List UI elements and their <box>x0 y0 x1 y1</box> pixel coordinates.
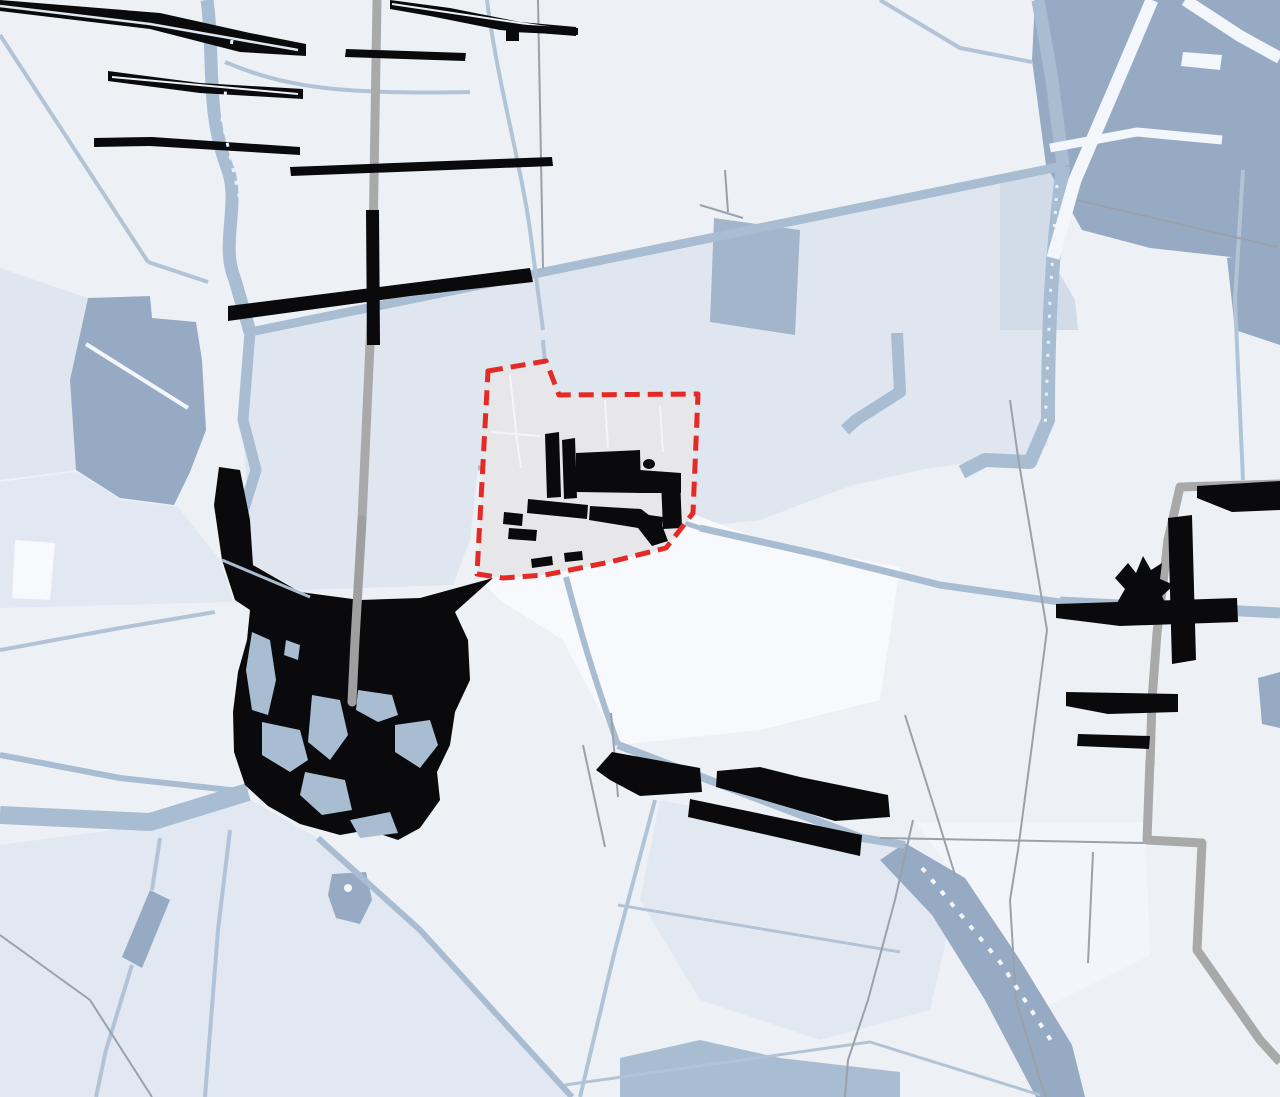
site-bldg-small1 <box>503 512 523 526</box>
site-bldg-small2 <box>508 528 537 541</box>
bar-right-vertical <box>1168 515 1196 664</box>
site-bldg-v1 <box>545 432 561 498</box>
site-bldg-v3 <box>661 478 682 529</box>
site-bldg-dot <box>643 459 655 469</box>
map-figure <box>0 0 1280 1097</box>
site-bldg-mass <box>576 450 641 493</box>
bar-on-gray-road <box>366 210 380 345</box>
parcel-nw-white <box>12 540 55 600</box>
site-map-svg <box>0 0 1280 1097</box>
field-left <box>70 296 206 505</box>
site-bldg-v2 <box>562 438 577 499</box>
pond-dot <box>344 884 352 892</box>
